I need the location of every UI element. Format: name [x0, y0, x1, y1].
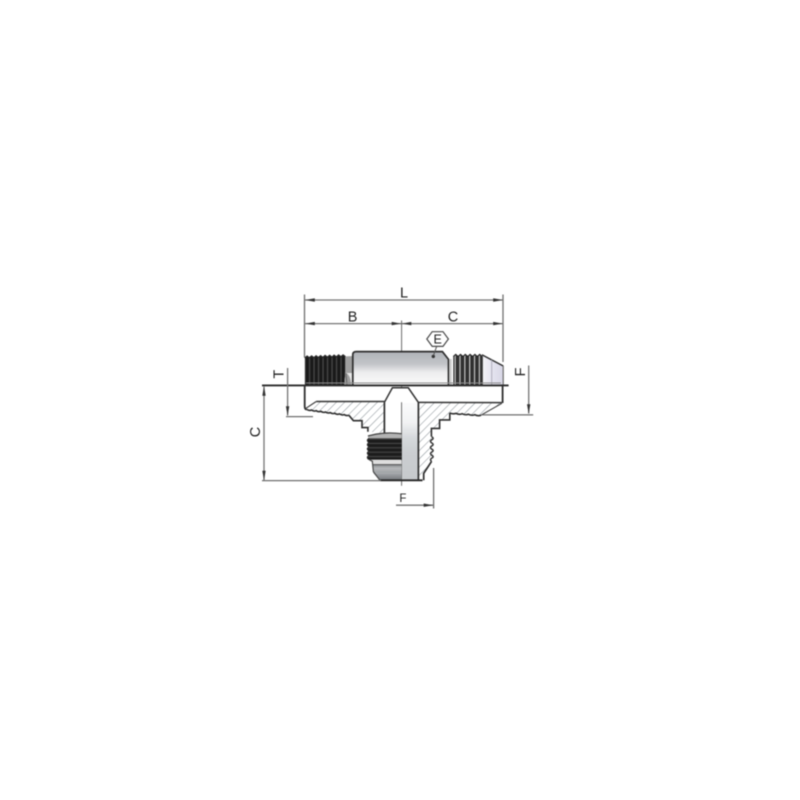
- svg-text:B: B: [348, 310, 358, 326]
- svg-text:T: T: [271, 370, 287, 379]
- svg-text:L: L: [400, 286, 408, 302]
- svg-text:F: F: [513, 367, 529, 376]
- svg-text:C: C: [448, 310, 458, 326]
- svg-text:E: E: [434, 333, 442, 347]
- svg-text:F: F: [399, 493, 406, 505]
- svg-text:C: C: [248, 427, 264, 437]
